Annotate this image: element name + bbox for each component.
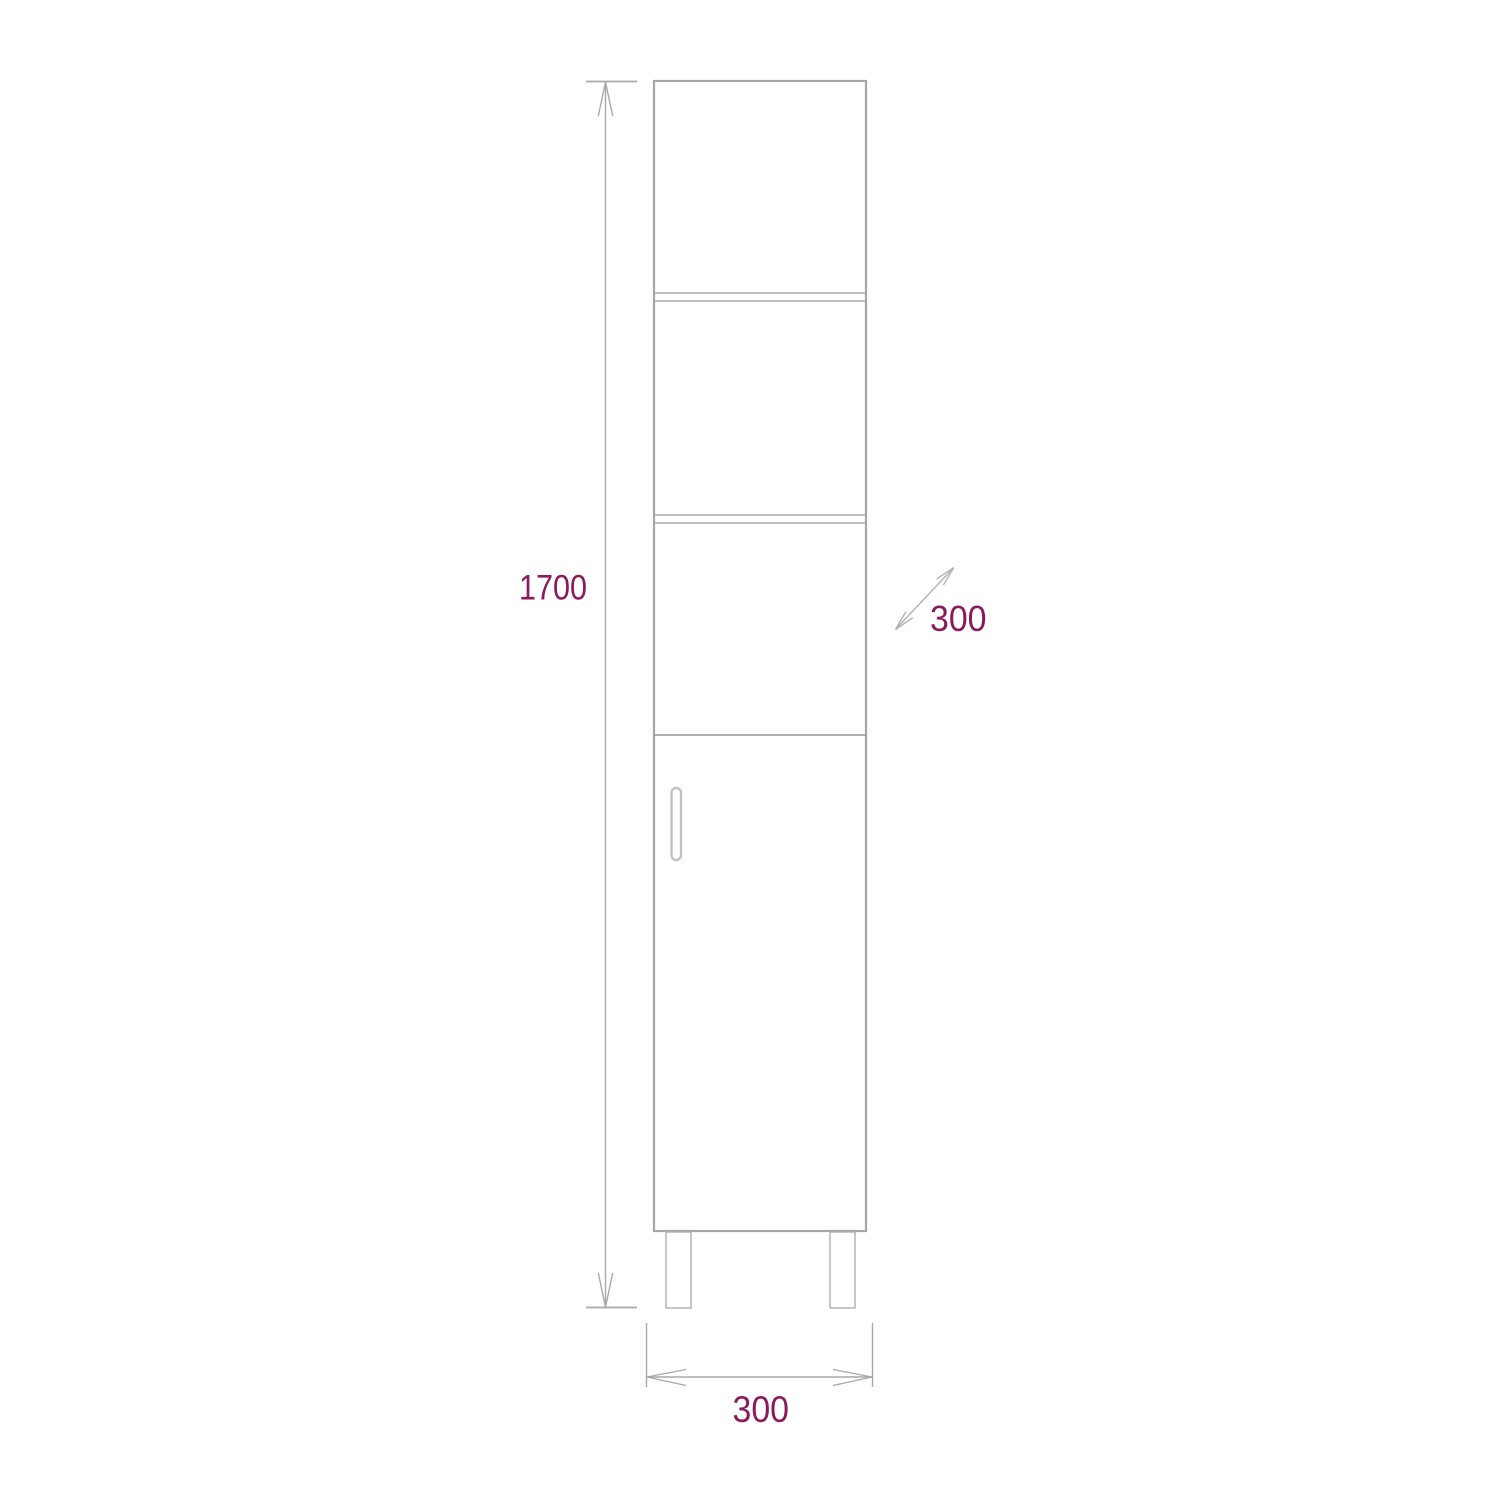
svg-text:300: 300 bbox=[930, 598, 987, 639]
svg-text:300: 300 bbox=[733, 1389, 790, 1430]
svg-text:1700: 1700 bbox=[519, 569, 587, 608]
